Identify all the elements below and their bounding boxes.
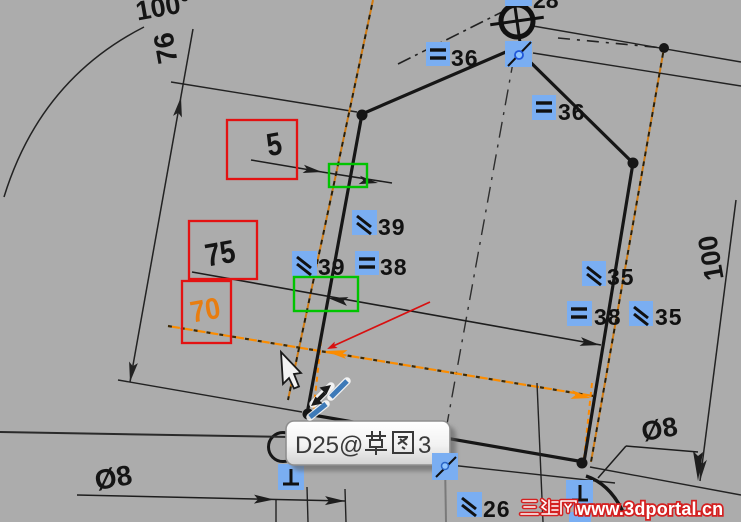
svg-text:www.3dportal.cn: www.3dportal.cn bbox=[576, 499, 723, 519]
svg-text:26: 26 bbox=[483, 496, 511, 522]
svg-text:76: 76 bbox=[148, 30, 184, 66]
svg-text:39: 39 bbox=[378, 214, 406, 240]
svg-text:70: 70 bbox=[188, 292, 223, 330]
svg-text:3: 3 bbox=[418, 432, 431, 459]
svg-text:Ø8: Ø8 bbox=[639, 411, 680, 447]
svg-text:D25@: D25@ bbox=[295, 432, 363, 459]
svg-text:36: 36 bbox=[451, 45, 479, 71]
svg-text:75: 75 bbox=[202, 233, 238, 274]
svg-text:38: 38 bbox=[380, 254, 408, 280]
svg-text:36: 36 bbox=[558, 99, 586, 125]
svg-text:38: 38 bbox=[594, 304, 622, 330]
svg-text:28: 28 bbox=[533, 0, 559, 13]
svg-text:Ø8: Ø8 bbox=[92, 459, 134, 496]
svg-text:35: 35 bbox=[655, 304, 683, 330]
svg-text:35: 35 bbox=[607, 264, 635, 290]
